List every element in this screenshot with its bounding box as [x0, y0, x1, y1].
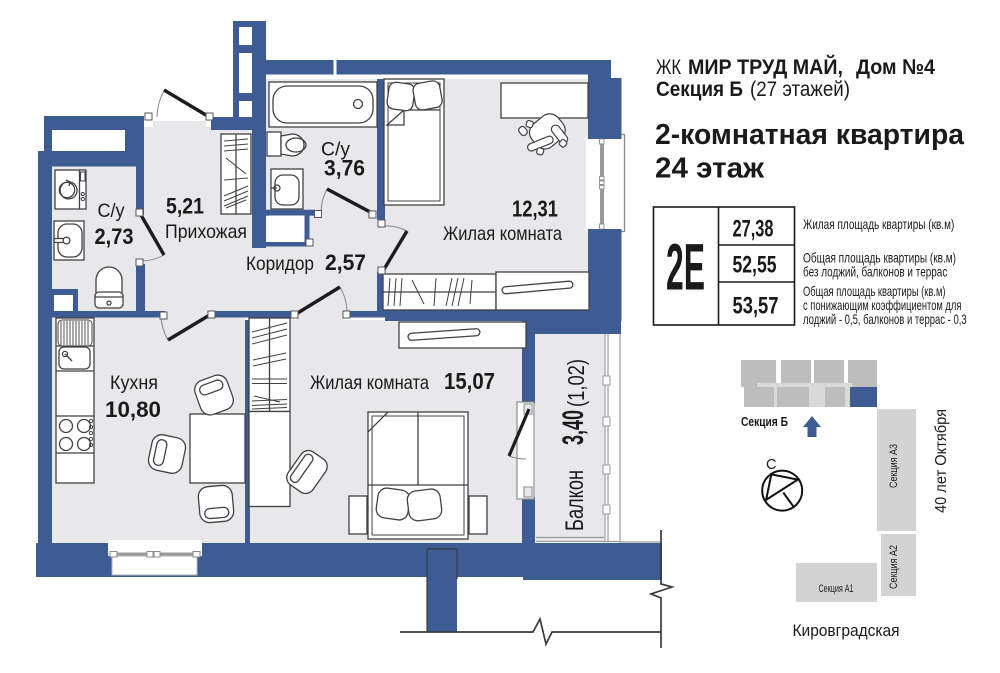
svg-text:2Е: 2Е	[666, 230, 705, 304]
svg-text:3,76: 3,76	[324, 156, 365, 181]
svg-text:24 этаж: 24 этаж	[655, 153, 764, 185]
svg-text:Секция А1: Секция А1	[819, 583, 854, 595]
svg-text:(27 этажей): (27 этажей)	[750, 77, 850, 101]
svg-text:(1,02): (1,02)	[563, 359, 589, 407]
svg-text:2,57: 2,57	[325, 250, 366, 275]
svg-text:Дом №4: Дом №4	[856, 55, 935, 79]
svg-text:Секция Б: Секция Б	[656, 77, 743, 101]
svg-text:Балкон: Балкон	[561, 470, 589, 531]
svg-text:2,73: 2,73	[95, 224, 134, 249]
svg-text:С/у: С/у	[98, 200, 125, 222]
svg-text:10,80: 10,80	[105, 397, 161, 422]
svg-text:без лоджий, балконов и террас: без лоджий, балконов и террас	[803, 264, 947, 280]
svg-text:3,40: 3,40	[557, 410, 590, 445]
svg-text:Жилая комната: Жилая комната	[443, 223, 562, 245]
svg-text:Коридор: Коридор	[246, 253, 314, 275]
svg-text:15,07: 15,07	[444, 368, 495, 394]
svg-text:Кировградская: Кировградская	[793, 621, 900, 640]
svg-text:Секция А3: Секция А3	[888, 444, 900, 488]
svg-text:Секция Б: Секция Б	[741, 415, 788, 429]
svg-text:Секция А2: Секция А2	[888, 545, 900, 589]
svg-text:С: С	[766, 457, 776, 473]
svg-text:Прихожая: Прихожая	[165, 221, 247, 243]
svg-text:Жилая площадь квартиры (кв.м): Жилая площадь квартиры (кв.м)	[803, 216, 954, 232]
svg-text:2-комнатная квартира: 2-комнатная квартира	[655, 119, 965, 151]
svg-text:53,57: 53,57	[733, 293, 779, 320]
svg-text:ЖК: ЖК	[656, 55, 681, 79]
svg-text:52,55: 52,55	[733, 252, 777, 279]
svg-text:12,31: 12,31	[512, 196, 558, 222]
svg-text:40 лет Октября: 40 лет Октября	[933, 409, 950, 513]
svg-text:МИР ТРУД МАЙ,: МИР ТРУД МАЙ,	[688, 54, 843, 79]
svg-text:5,21: 5,21	[166, 194, 204, 219]
svg-text:Кухня: Кухня	[110, 372, 158, 394]
svg-text:лоджий - 0,5, балконов и терра: лоджий - 0,5, балконов и террас - 0,3	[803, 311, 967, 327]
svg-text:Жилая комната: Жилая комната	[310, 372, 429, 394]
svg-text:27,38: 27,38	[733, 216, 774, 243]
